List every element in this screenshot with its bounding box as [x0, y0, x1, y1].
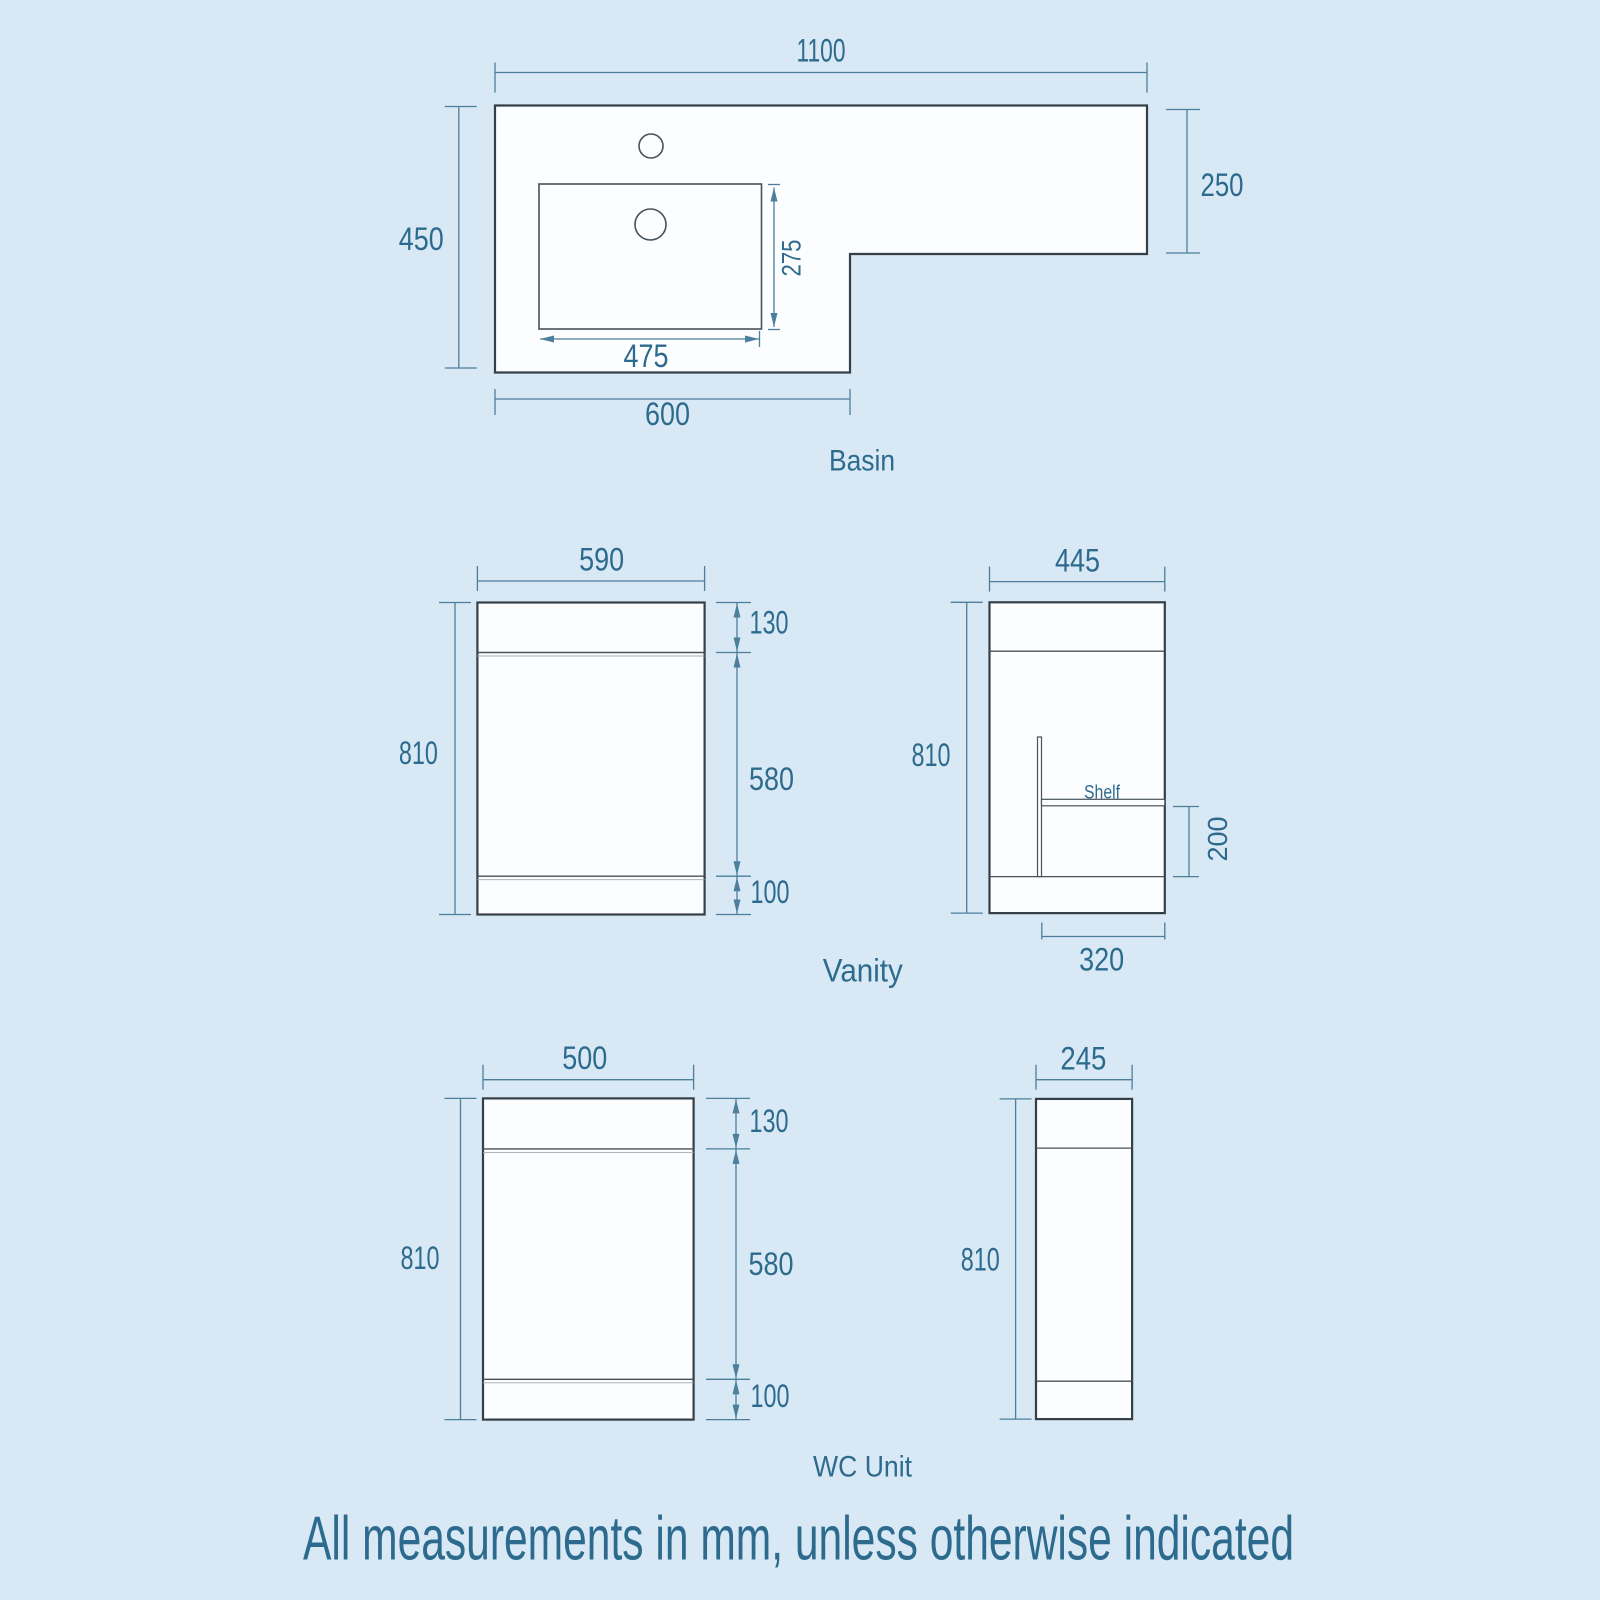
svg-text:100: 100: [751, 874, 790, 910]
svg-text:130: 130: [750, 1103, 789, 1139]
svg-text:Vanity: Vanity: [823, 953, 903, 989]
svg-text:475: 475: [624, 338, 669, 374]
svg-text:200: 200: [1202, 817, 1233, 862]
svg-text:580: 580: [749, 761, 794, 797]
svg-text:WC Unit: WC Unit: [813, 1450, 913, 1483]
svg-text:445: 445: [1055, 543, 1100, 579]
svg-text:500: 500: [562, 1040, 607, 1076]
svg-text:245: 245: [1060, 1041, 1106, 1077]
svg-text:All measurements in mm, unless: All measurements in mm, unless otherwise…: [303, 1505, 1294, 1574]
svg-text:810: 810: [912, 737, 951, 773]
svg-text:590: 590: [579, 542, 624, 578]
svg-text:Shelf: Shelf: [1084, 783, 1121, 804]
svg-text:250: 250: [1201, 167, 1244, 203]
svg-text:130: 130: [750, 605, 789, 641]
svg-text:320: 320: [1079, 942, 1124, 978]
svg-text:580: 580: [749, 1246, 794, 1282]
svg-text:600: 600: [645, 396, 690, 432]
svg-text:450: 450: [399, 221, 444, 257]
svg-text:810: 810: [961, 1242, 1000, 1278]
svg-text:Basin: Basin: [829, 445, 895, 478]
svg-text:1100: 1100: [797, 33, 846, 69]
svg-text:275: 275: [777, 240, 807, 277]
svg-text:810: 810: [401, 1240, 440, 1276]
svg-text:810: 810: [399, 735, 438, 771]
svg-text:100: 100: [751, 1378, 790, 1414]
